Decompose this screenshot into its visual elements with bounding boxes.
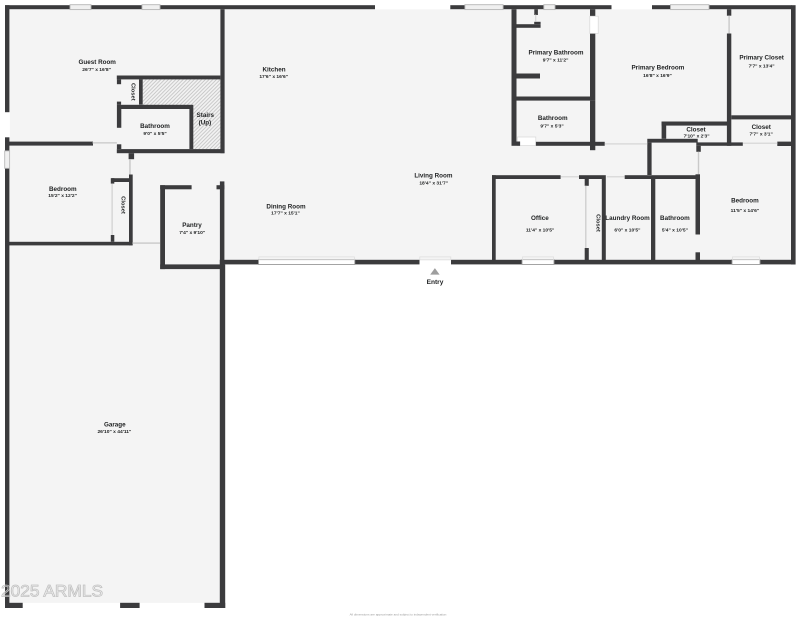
svg-text:Primary Bedroom: Primary Bedroom	[631, 65, 684, 72]
svg-text:7'4" x 9'10": 7'4" x 9'10"	[179, 230, 205, 236]
svg-text:Bathroom: Bathroom	[140, 123, 170, 130]
svg-text:Closet: Closet	[686, 126, 706, 133]
svg-text:All dimensions are approximate: All dimensions are approximate and subje…	[350, 612, 447, 616]
svg-text:Kitchen: Kitchen	[262, 67, 285, 74]
svg-text:17'6" x 16'6": 17'6" x 16'6"	[259, 74, 288, 80]
svg-text:Guest Room: Guest Room	[78, 59, 116, 66]
svg-text:26'7" x 16'8": 26'7" x 16'8"	[82, 67, 111, 73]
svg-text:6'0" x 10'5": 6'0" x 10'5"	[614, 227, 640, 233]
svg-text:7'10" x 2'3": 7'10" x 2'3"	[684, 133, 710, 139]
svg-text:18'4" x 31'7": 18'4" x 31'7"	[419, 180, 448, 186]
svg-text:2025 ARMLS: 2025 ARMLS	[1, 583, 103, 601]
svg-text:Bedroom: Bedroom	[731, 198, 759, 205]
svg-text:17'7" x 15'1": 17'7" x 15'1"	[271, 210, 300, 216]
svg-text:15'2" x 12'2": 15'2" x 12'2"	[48, 193, 77, 199]
svg-text:Pantry: Pantry	[182, 222, 202, 229]
svg-text:7'7" x 3'1": 7'7" x 3'1"	[750, 132, 773, 138]
svg-text:Primary Closet: Primary Closet	[739, 55, 784, 62]
svg-text:Closet: Closet	[120, 196, 126, 214]
svg-text:Living Room: Living Room	[414, 173, 453, 180]
svg-text:Closet: Closet	[752, 124, 772, 131]
svg-text:Bedroom: Bedroom	[49, 186, 77, 193]
svg-text:7'7" x 13'4": 7'7" x 13'4"	[749, 64, 775, 70]
svg-text:5'4" x 10'5": 5'4" x 10'5"	[662, 227, 688, 233]
svg-text:Closet: Closet	[595, 214, 601, 232]
svg-text:(Up): (Up)	[199, 119, 212, 126]
svg-text:Bathroom: Bathroom	[538, 115, 568, 122]
svg-text:Stairs: Stairs	[197, 112, 215, 119]
svg-text:Laundry Room: Laundry Room	[605, 215, 650, 222]
svg-text:11'5" x 14'6": 11'5" x 14'6"	[731, 208, 759, 214]
svg-text:Garage: Garage	[104, 422, 126, 429]
svg-text:9'0" x 5'5": 9'0" x 5'5"	[143, 131, 166, 137]
svg-text:26'10" x 44'11": 26'10" x 44'11"	[97, 429, 131, 435]
svg-text:9'7" x 11'2": 9'7" x 11'2"	[543, 58, 569, 64]
svg-text:9'7" x 5'3": 9'7" x 5'3"	[540, 124, 563, 130]
svg-text:Bathroom: Bathroom	[660, 215, 690, 222]
svg-text:Entry: Entry	[427, 279, 444, 286]
svg-text:11'4" x 10'5": 11'4" x 10'5"	[526, 227, 554, 233]
svg-text:Office: Office	[531, 215, 549, 222]
svg-text:Primary Bathroom: Primary Bathroom	[529, 49, 584, 56]
svg-text:Dining Room: Dining Room	[266, 204, 306, 211]
svg-text:16'8" x 16'9": 16'8" x 16'9"	[643, 73, 672, 79]
svg-text:Closet: Closet	[130, 83, 136, 101]
